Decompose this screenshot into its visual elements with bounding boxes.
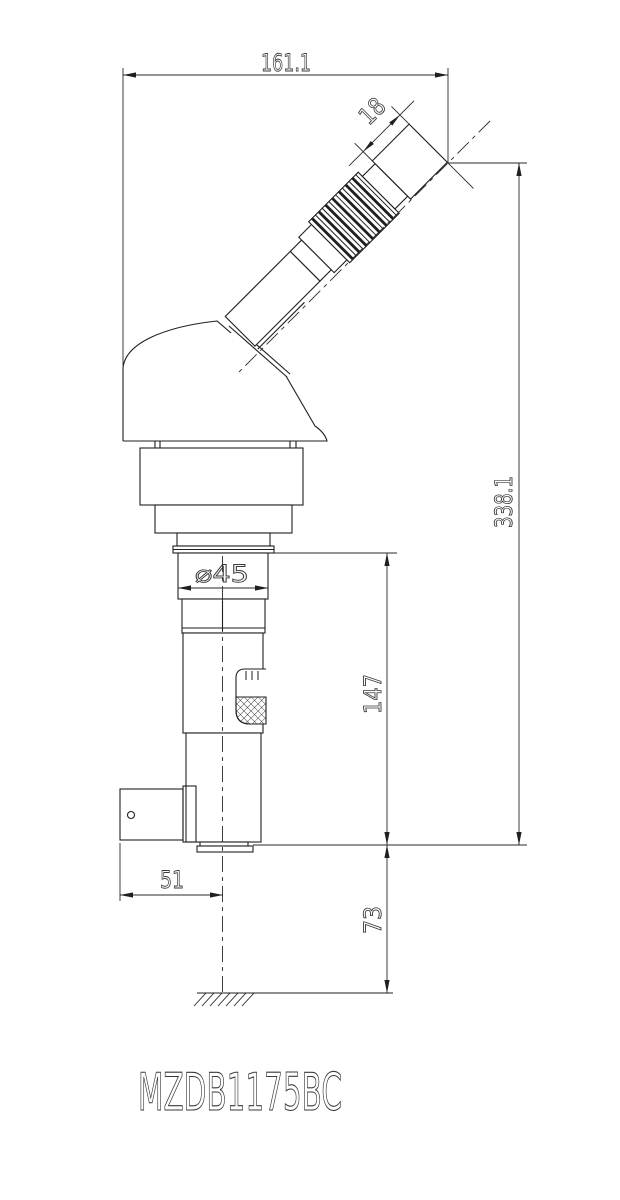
technical-drawing-canvas: 161.1 18 338.1 147 73 [0, 0, 620, 1200]
focus-knob[interactable] [236, 669, 266, 724]
zoom-ring-lower[interactable] [155, 505, 292, 533]
dim-working-distance-label: 73 [359, 906, 387, 934]
model-number-title: MZDB1175BC [138, 1063, 342, 1123]
mounting-bracket [120, 786, 196, 842]
dim-overall-width: 161.1 [123, 49, 448, 366]
dim-overall-width-label: 161.1 [261, 49, 311, 77]
dim-eyepiece-end-label: 18 [353, 92, 391, 130]
dim-bracket-offset-label: 51 [160, 866, 184, 894]
dim-working-distance: 73 [359, 845, 390, 993]
lens-lip [197, 846, 253, 852]
bracket-body [120, 789, 183, 840]
focus-knob-grip[interactable] [236, 697, 266, 724]
objective-lens [197, 842, 253, 852]
microscope-head [123, 321, 327, 441]
lens-neck [200, 842, 248, 846]
dim-lower-body-height: 147 [253, 553, 527, 993]
dim-tube-diameter-label: ⌀45 [195, 560, 249, 588]
dim-lower-body-height-label: 147 [359, 674, 387, 714]
eyepiece-assembly [203, 92, 487, 376]
dim-overall-height-label: 338.1 [490, 476, 518, 528]
neck-ring [177, 533, 270, 546]
ground-hatching [194, 993, 254, 1006]
drawing-page: 161.1 18 338.1 147 73 [0, 0, 620, 1200]
head-outline [123, 321, 327, 441]
dim-overall-height: 338.1 [448, 163, 527, 845]
ground-symbol [194, 993, 393, 1006]
main-tube-lower [186, 733, 261, 842]
zoom-ring-upper[interactable] [140, 448, 303, 505]
body-column [120, 441, 303, 852]
